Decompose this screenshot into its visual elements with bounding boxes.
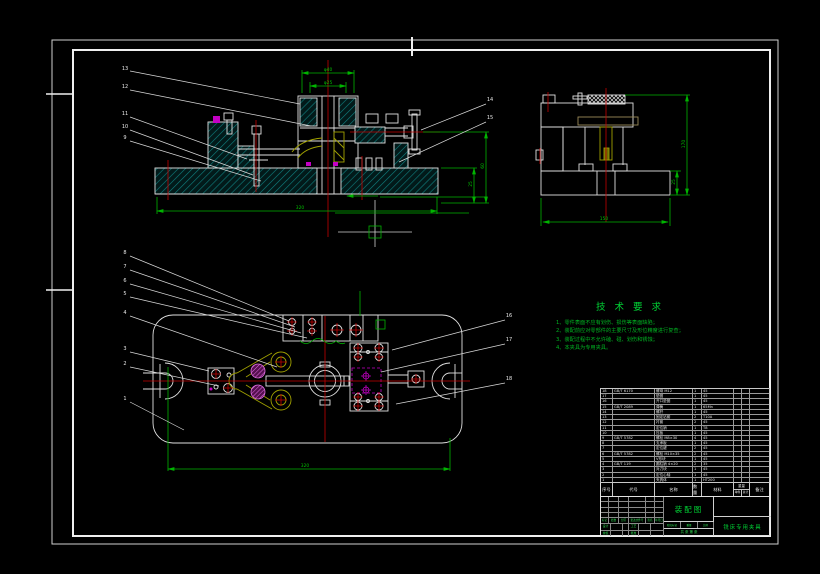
bom-cell-single (734, 441, 742, 445)
bom-cell-total (742, 446, 750, 450)
bom-cell-single (734, 457, 742, 461)
callout-3: 3 (123, 346, 126, 352)
bom-cell-no: 5 (601, 457, 613, 461)
bom-cell-total (742, 410, 750, 414)
bom-cell-material: 45 (702, 399, 734, 403)
revision-label: 处数 (609, 518, 619, 523)
bom-cell-name: 固定钻套 (655, 415, 693, 419)
dim-front-top-outer: φ40 (324, 67, 333, 73)
bom-cell-total (742, 462, 750, 466)
bom-cell-single (734, 426, 742, 430)
stage-row: 阶段标记 重量 比例 (664, 522, 714, 529)
bom-cell-code (613, 446, 655, 450)
bom-cell-no: 3 (601, 467, 613, 471)
callout-1: 1 (123, 396, 126, 402)
bom-cell-name: V形块 (655, 457, 693, 461)
bom-cell-code (613, 478, 655, 482)
drawing-name-label: 铣床专用夹具 (714, 517, 771, 536)
dim-side-bottom: 150 (600, 216, 609, 222)
bom-header: 序号 代号 名称 数量 材料 重量 单件 总计 备注 (600, 483, 770, 497)
callout-11: 11 (122, 111, 128, 117)
bom-cell-code (613, 467, 655, 471)
bom-cell-material: 45 (702, 436, 734, 440)
bom-cell-material: 45 (702, 441, 734, 445)
dim-plan-bottom: 320 (301, 463, 310, 469)
callout-9: 9 (123, 135, 126, 141)
bom-header-remark: 备注 (750, 483, 769, 496)
bom-header-total: 总计 (742, 490, 749, 496)
bom-cell-total (742, 420, 750, 424)
bom-cell-qty: 2 (693, 452, 702, 456)
bom-cell-remark (750, 405, 769, 409)
unit-name-cell (714, 497, 771, 517)
front-section-view (155, 96, 438, 247)
bom-cell-total (742, 394, 750, 398)
bom-cell-single (734, 431, 742, 435)
bom-cell-material: T8 (702, 426, 734, 430)
callout-8: 8 (123, 250, 126, 256)
revision-label: 分区 (619, 518, 629, 523)
role-label: 校核 (601, 531, 611, 537)
bom-cell-total (742, 473, 750, 477)
bom-cell-qty: 1 (693, 473, 702, 477)
bom-cell-remark (750, 473, 769, 477)
bom-cell-no: 13 (601, 415, 613, 419)
bom-cell-code (613, 420, 655, 424)
bom-cell-code (613, 457, 655, 461)
tool-setting-block-marker (376, 320, 385, 329)
bom-cell-qty: 2 (693, 462, 702, 466)
title-block-right: 铣床专用夹具 (714, 497, 771, 536)
callout-14: 14 (487, 97, 493, 103)
bom-cell-material: 45 (702, 394, 734, 398)
bom-cell-single (734, 415, 742, 419)
bom-cell-no: 9 (601, 436, 613, 440)
upper-body (541, 103, 633, 127)
bom-cell-remark (750, 441, 769, 445)
bom-cell-remark (750, 410, 769, 414)
bom-cell-name: 开口垫圈 (655, 399, 693, 403)
bom-header-name: 名称 (655, 483, 693, 496)
bom-cell-material: 45 (702, 473, 734, 477)
revision-label: 签名 (646, 518, 655, 523)
bom-cell-total (742, 426, 750, 430)
bom-cell-remark (750, 389, 769, 393)
bom-cell-remark (750, 452, 769, 456)
bom-cell-material: 45 (702, 446, 734, 450)
bom-cell-name: 螺杆 (655, 410, 693, 414)
bom-cell-no: 4 (601, 462, 613, 466)
technical-requirements: 技 术 要 求 1、零件表面不应有划伤、损伤等表面缺陷； 2、装配前应对零部件的… (556, 299, 742, 353)
bom-cell-remark (750, 394, 769, 398)
bom-cell-remark (750, 426, 769, 430)
bom-cell-code (613, 415, 655, 419)
callout-7: 7 (123, 264, 126, 270)
bom-cell-material: 45 (702, 467, 734, 471)
callout-5: 5 (123, 291, 126, 297)
bom-cell-name: 圆柱销 4×20 (655, 462, 693, 466)
callout-18: 18 (506, 376, 512, 382)
side-base (541, 171, 670, 195)
callout-17: 17 (506, 337, 512, 343)
bom-cell-single (734, 389, 742, 393)
side-view (536, 93, 670, 195)
bom-cell-name: 定位销 (655, 426, 693, 430)
revision-label: 标记 (601, 518, 609, 523)
bom-cell-remark (750, 420, 769, 424)
base-plate-hatched (155, 168, 438, 194)
bom-cell-qty: 1 (693, 399, 702, 403)
dim-front-right-height: 60 (480, 163, 486, 169)
bom-cell-qty: 1 (693, 394, 702, 398)
bom-header-no: 序号 (601, 483, 613, 496)
callout-4: 4 (123, 310, 126, 316)
bom-cell-code (613, 426, 655, 430)
bom-cell-no: 15 (601, 405, 613, 409)
bom-cell-qty: 1 (693, 441, 702, 445)
bom-cell-total (742, 457, 750, 461)
datum-crosshair (338, 200, 412, 247)
bom-cell-code (613, 394, 655, 398)
bom-cell-no: 16 (601, 399, 613, 403)
revision-label: 更改文件号 (629, 518, 646, 523)
bom-cell-material: HT200 (702, 478, 734, 482)
technical-requirements-title: 技 术 要 求 (596, 299, 742, 313)
bom-header-weight: 重量 (734, 483, 749, 490)
revision-area: 标记 处数 分区 更改文件号 签名 年月日 设计 工艺 校核 批准 (601, 497, 664, 536)
bom-cell-no: 11 (601, 426, 613, 430)
bom-cell-code: GB/T 6170 (613, 389, 655, 393)
bom-cell-no: 14 (601, 410, 613, 414)
technical-requirement-item: 3、装配过程中不允许磕、碰、划伤和锈蚀； (556, 336, 742, 344)
bom-header-qty: 数量 (693, 483, 702, 496)
bom-cell-single (734, 436, 742, 440)
bom-cell-code: GB/T 119 (613, 462, 655, 466)
bom-cell-single (734, 452, 742, 456)
bom-cell-qty: 2 (693, 415, 702, 419)
sheet-count-label: 共 张 第 张 (664, 529, 714, 536)
bom-header-weight-group: 重量 单件 总计 (734, 483, 750, 496)
bom-cell-qty: 1 (693, 426, 702, 430)
slide-block (355, 127, 385, 143)
bom-cell-single (734, 410, 742, 414)
bom-cell-material: 45 (702, 410, 734, 414)
bom-table: 18 GB/T 6170 螺母 M12 1 45 17 垫圈 1 45 (600, 388, 770, 483)
bom-cell-material: 45 (702, 452, 734, 456)
bom-cell-name: 定位心轴 (655, 473, 693, 477)
bom-cell-no: 10 (601, 431, 613, 435)
bom-cell-name: 支承板 (655, 441, 693, 445)
side-view-centerlines (540, 88, 606, 222)
callout-10: 10 (122, 124, 128, 130)
bom-cell-remark (750, 478, 769, 482)
bom-cell-material: 45 (702, 420, 734, 424)
bom-cell-code: GB/T 2089 (613, 405, 655, 409)
dim-front-top-inner: φ25 (324, 80, 333, 86)
bom-cell-no: 18 (601, 389, 613, 393)
dim-front-bottom: 320 (296, 205, 305, 211)
technical-requirement-item: 1、零件表面不应有划伤、损伤等表面缺陷； (556, 319, 742, 327)
revision-label: 年月日 (655, 518, 664, 523)
bom-cell-remark (750, 431, 769, 435)
revision-grid (601, 497, 664, 518)
bom-cell-qty: 1 (693, 405, 702, 409)
title-block: 18 GB/T 6170 螺母 M12 1 45 17 垫圈 1 45 (600, 388, 770, 536)
bom-cell-code: GB/T 5782 (613, 452, 655, 456)
bom-cell-code (613, 441, 655, 445)
technical-requirement-item: 2、装配前应对零部件的主要尺寸及形位精度进行复查； (556, 327, 742, 335)
role-label: 批准 (629, 531, 639, 537)
bom-cell-qty: 2 (693, 420, 702, 424)
bom-cell-total (742, 478, 750, 482)
left-support-column (208, 122, 238, 168)
dim-front-right-base: 25 (468, 181, 474, 187)
bom-cell-no: 17 (601, 394, 613, 398)
bom-cell-no: 8 (601, 441, 613, 445)
callout-12: 12 (122, 84, 128, 90)
bom-cell-total (742, 436, 750, 440)
bom-cell-single (734, 405, 742, 409)
bom-cell-material: 35 (702, 462, 734, 466)
bom-cell-single (734, 399, 742, 403)
bom-cell-single (734, 467, 742, 471)
clamp-bolt (252, 126, 261, 134)
bom-cell-qty: 1 (693, 478, 702, 482)
bom-cell-no: 12 (601, 420, 613, 424)
bom-cell-remark (750, 399, 769, 403)
callout-2: 2 (123, 361, 126, 367)
cad-application-canvas: { "callouts": ["1","2","3","4","5","6","… (0, 0, 820, 574)
drawing-type-label: 装配图 (664, 497, 714, 522)
bom-cell-name: 压板 (655, 431, 693, 435)
bom-cell-single (734, 462, 742, 466)
callout-15: 15 (487, 115, 493, 121)
bom-cell-name: 定位键 (655, 446, 693, 450)
bom-cell-single (734, 446, 742, 450)
bom-cell-code (613, 399, 655, 403)
bom-cell-single (734, 394, 742, 398)
bom-cell-code: GB/T 5782 (613, 436, 655, 440)
bom-cell-material: 45 (702, 457, 734, 461)
bom-cell-remark (750, 462, 769, 466)
title-block-middle: 装配图 阶段标记 重量 比例 共 张 第 张 (664, 497, 714, 536)
side-view-olive-details (578, 117, 638, 125)
bom-cell-total (742, 441, 750, 445)
callout-6: 6 (123, 278, 126, 284)
bom-cell-total (742, 467, 750, 471)
bom-cell-name: 夹具体 (655, 478, 693, 482)
bom-cell-qty: 1 (693, 389, 702, 393)
bom-cell-no: 2 (601, 473, 613, 477)
bom-cell-remark (750, 436, 769, 440)
bom-cell-total (742, 431, 750, 435)
bom-cell-single (734, 420, 742, 424)
dim-side-height: 170 (681, 140, 687, 149)
bom-header-material: 材料 (702, 483, 734, 496)
plan-view-magenta-details (210, 364, 382, 399)
bom-cell-qty: 1 (693, 457, 702, 461)
bom-header-single: 单件 (734, 490, 742, 496)
callout-13: 13 (122, 66, 128, 72)
dim-side-base: 25 (671, 179, 677, 185)
bom-cell-no: 7 (601, 446, 613, 450)
bom-cell-name: 垫圈 (655, 394, 693, 398)
bom-cell-single (734, 473, 742, 477)
bom-cell-code (613, 473, 655, 477)
bom-cell-remark (750, 467, 769, 471)
bom-cell-name: 螺栓 M8×30 (655, 436, 693, 440)
stage-label: 比例 (698, 522, 714, 528)
bom-cell-name: 对刀块 (655, 467, 693, 471)
bom-cell-code (613, 431, 655, 435)
bom-header-code: 代号 (613, 483, 655, 496)
bom-cell-total (742, 405, 750, 409)
bom-cell-material: 45 (702, 389, 734, 393)
front-view-olive-details (292, 132, 344, 162)
bom-cell-name: 衬套 (655, 420, 693, 424)
bom-cell-material: 45 (702, 431, 734, 435)
stage-label: 阶段标记 (664, 522, 681, 528)
stage-label: 重量 (681, 522, 698, 528)
bom-cell-qty: 1 (693, 467, 702, 471)
callout-16: 16 (506, 313, 512, 319)
bom-cell-remark (750, 446, 769, 450)
bom-cell-total (742, 389, 750, 393)
bom-cell-name: 螺栓 M10×35 (655, 452, 693, 456)
bom-cell-name: 螺母 M12 (655, 389, 693, 393)
locating-ring (309, 362, 349, 405)
bom-cell-material: T10A (702, 415, 734, 419)
title-block-bottom: 标记 处数 分区 更改文件号 签名 年月日 设计 工艺 校核 批准 (600, 497, 770, 536)
signature-rows: 设计 工艺 校核 批准 (601, 524, 664, 536)
bom-cell-no: 1 (601, 478, 613, 482)
bom-cell-qty: 1 (693, 431, 702, 435)
bom-cell-total (742, 452, 750, 456)
bom-cell-qty: 2 (693, 446, 702, 450)
bom-cell-name: 弹簧 (655, 405, 693, 409)
plan-view-centerlines (143, 316, 470, 442)
technical-requirement-item: 4、本夹具为专用夹具。 (556, 344, 742, 352)
role-label: 设计 (601, 524, 611, 530)
role-label: 工艺 (629, 524, 639, 530)
bom-cell-remark (750, 415, 769, 419)
bom-cell-single (734, 478, 742, 482)
bom-row: 1 夹具体 1 HT200 (601, 478, 769, 482)
bom-cell-remark (750, 457, 769, 461)
bom-cell-qty: 4 (693, 436, 702, 440)
bom-cell-material: 65Mn (702, 405, 734, 409)
bom-cell-total (742, 415, 750, 419)
bom-cell-no: 6 (601, 452, 613, 456)
bom-cell-qty: 1 (693, 410, 702, 414)
bom-cell-code (613, 410, 655, 414)
bom-cell-total (742, 399, 750, 403)
